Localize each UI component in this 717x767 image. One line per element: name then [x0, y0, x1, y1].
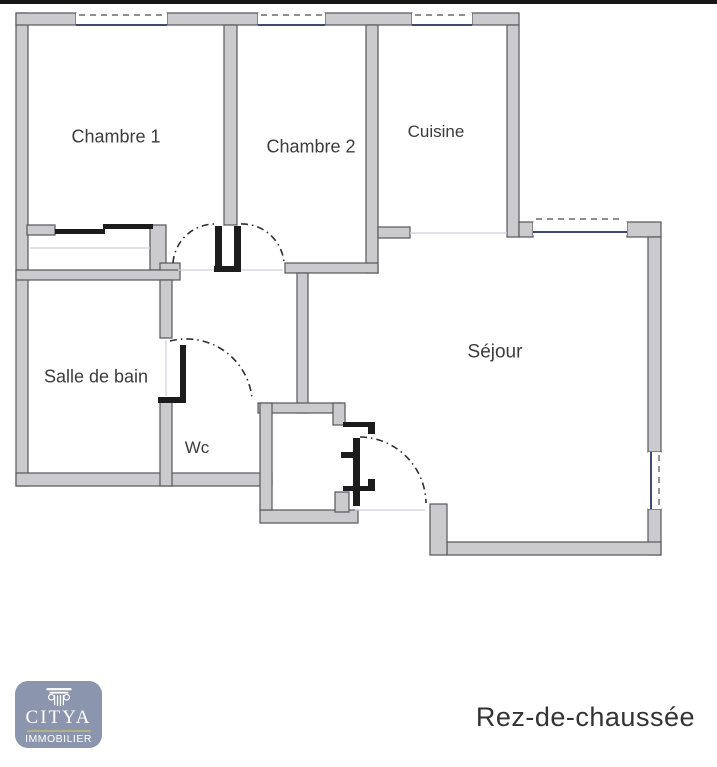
- wall: [160, 280, 172, 338]
- wall: [224, 25, 237, 225]
- wall: [627, 222, 661, 237]
- door-swing-arc: [241, 224, 284, 263]
- wall: [333, 403, 345, 425]
- logo-divider: [27, 730, 91, 732]
- door-leaf: [103, 224, 153, 229]
- wall: [507, 25, 519, 237]
- wall: [297, 273, 308, 413]
- door-swing-arc: [173, 224, 215, 263]
- wall: [519, 222, 533, 237]
- wall: [430, 504, 447, 555]
- logo-brand-text: CITYA: [26, 708, 92, 727]
- door-swing-arc: [360, 437, 426, 503]
- wall: [167, 13, 258, 25]
- wall: [27, 225, 55, 235]
- wall: [447, 542, 661, 555]
- room-label-salle-de-bain: Salle de bain: [44, 366, 148, 386]
- floorplan-svg: Chambre 1Chambre 2CuisineSéjourSalle de …: [0, 0, 717, 767]
- citya-logo: CITYA IMMOBILIER: [15, 681, 102, 748]
- door-leaf: [215, 226, 222, 267]
- door-leaf: [214, 266, 241, 272]
- wall: [378, 227, 410, 238]
- floorplan-page: Chambre 1Chambre 2CuisineSéjourSalle de …: [0, 0, 717, 767]
- wall: [285, 263, 378, 273]
- wall: [160, 398, 172, 486]
- door-leaf: [180, 345, 186, 401]
- wall: [366, 25, 378, 273]
- room-label-chambre-2: Chambre 2: [266, 136, 355, 156]
- room-label-chambre-1: Chambre 1: [71, 126, 160, 146]
- room-label-wc: Wc: [185, 438, 210, 457]
- wall: [335, 492, 349, 512]
- door-leaf: [368, 425, 375, 434]
- wall: [648, 237, 661, 452]
- door-leaf: [353, 438, 360, 506]
- window: [533, 222, 627, 235]
- room-label-cuisine: Cuisine: [408, 122, 465, 141]
- window: [76, 13, 167, 25]
- door-leaf: [234, 226, 241, 267]
- wall: [16, 270, 180, 280]
- wall: [325, 13, 412, 25]
- door-leaf: [368, 479, 375, 487]
- column-capital-icon: [44, 687, 74, 706]
- wall: [16, 13, 76, 25]
- wall: [260, 403, 272, 510]
- wall: [16, 13, 28, 486]
- logo-tagline-text: IMMOBILIER: [25, 734, 92, 745]
- door-leaf: [341, 452, 353, 458]
- floor-level-label: Rez-de-chaussée: [476, 702, 695, 733]
- window: [258, 13, 325, 25]
- wall: [16, 473, 272, 486]
- wall: [472, 13, 519, 25]
- room-label-sejour: Séjour: [468, 342, 524, 363]
- door-leaf: [55, 229, 105, 234]
